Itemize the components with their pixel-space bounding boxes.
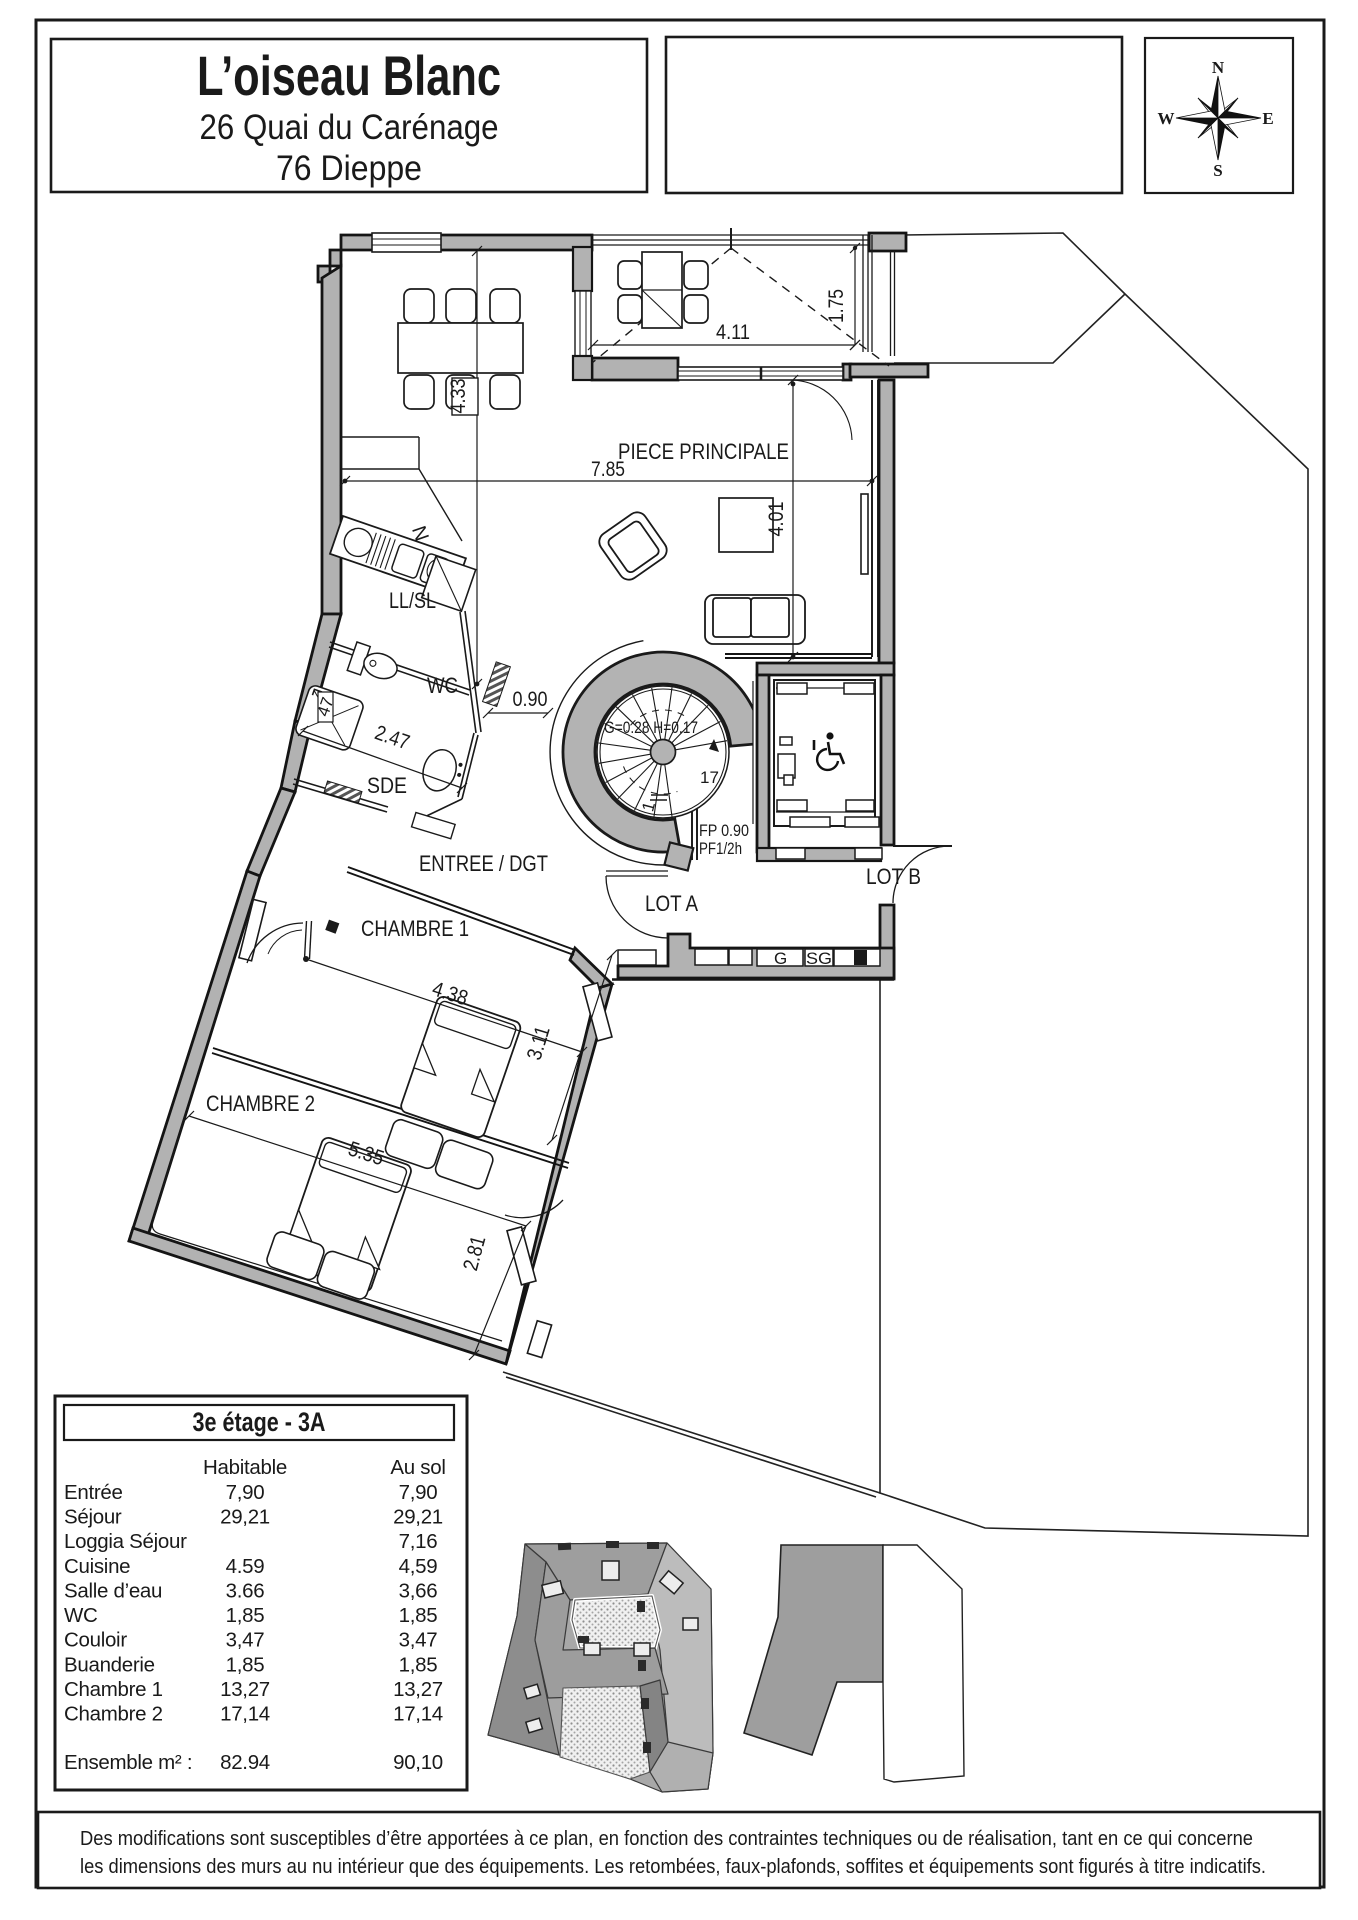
svg-text:90,10: 90,10: [393, 1751, 443, 1774]
svg-text:1,85: 1,85: [226, 1653, 265, 1676]
svg-text:3e étage - 3A: 3e étage - 3A: [193, 1407, 326, 1437]
svg-text:LOT A: LOT A: [645, 891, 698, 916]
svg-text:Loggia Séjour: Loggia Séjour: [64, 1530, 187, 1553]
svg-text:les dimensions des murs au nu: les dimensions des murs au nu intérieur …: [80, 1856, 1266, 1878]
svg-text:Chambre 2: Chambre 2: [64, 1703, 163, 1726]
svg-text:7,90: 7,90: [226, 1481, 265, 1504]
svg-text:29,21: 29,21: [393, 1506, 443, 1529]
svg-text:CHAMBRE 1: CHAMBRE 1: [361, 916, 469, 941]
svg-text:Ensemble m² :: Ensemble m² :: [64, 1751, 192, 1774]
svg-text:Séjour: Séjour: [64, 1506, 122, 1529]
svg-text:4,59: 4,59: [399, 1555, 438, 1578]
svg-text:7,90: 7,90: [399, 1481, 438, 1504]
svg-text:3,47: 3,47: [226, 1629, 265, 1652]
svg-text:Couloir: Couloir: [64, 1629, 127, 1652]
svg-text:ENTREE / DGT: ENTREE / DGT: [419, 851, 548, 876]
svg-text:CHAMBRE 2: CHAMBRE 2: [206, 1091, 315, 1116]
svg-text:N: N: [1212, 58, 1225, 77]
svg-text:1,85: 1,85: [399, 1653, 438, 1676]
svg-text:G: G: [774, 949, 787, 968]
svg-text:W: W: [1158, 109, 1175, 128]
svg-text:SG: SG: [806, 949, 832, 968]
svg-text:13,27: 13,27: [393, 1678, 443, 1701]
svg-text:1.75: 1.75: [825, 289, 848, 323]
svg-text:1,85: 1,85: [226, 1604, 265, 1627]
svg-text:WC: WC: [64, 1604, 98, 1627]
svg-text:WC: WC: [427, 673, 458, 698]
svg-text:29,21: 29,21: [220, 1506, 270, 1529]
svg-text:17,14: 17,14: [220, 1703, 270, 1726]
svg-text:Cuisine: Cuisine: [64, 1555, 130, 1578]
svg-text:3.66: 3.66: [226, 1580, 265, 1603]
svg-text:L’oiseau Blanc: L’oiseau Blanc: [197, 44, 501, 107]
svg-text:S: S: [1213, 161, 1222, 180]
svg-text:4.33: 4.33: [447, 379, 470, 414]
svg-text:4.01: 4.01: [765, 502, 788, 537]
svg-text:Buanderie: Buanderie: [64, 1653, 155, 1676]
svg-text:17,14: 17,14: [393, 1703, 443, 1726]
svg-text:7,16: 7,16: [399, 1530, 438, 1553]
svg-text:G=0.28 H=0.17: G=0.28 H=0.17: [604, 718, 698, 737]
svg-text:3,66: 3,66: [399, 1580, 438, 1603]
svg-text:17: 17: [700, 768, 719, 787]
svg-text:3,47: 3,47: [399, 1629, 438, 1652]
svg-text:Habitable: Habitable: [203, 1456, 287, 1479]
svg-text:0.90: 0.90: [513, 688, 548, 711]
svg-text:FP 0.90: FP 0.90: [699, 821, 749, 840]
svg-text:Entrée: Entrée: [64, 1481, 123, 1504]
svg-text:4.59: 4.59: [226, 1555, 265, 1578]
svg-text:Salle d’eau: Salle d’eau: [64, 1580, 162, 1603]
svg-text:Chambre 1: Chambre 1: [64, 1678, 163, 1701]
svg-text:SDE: SDE: [367, 773, 407, 798]
svg-text:26 Quai du Carénage: 26 Quai du Carénage: [200, 108, 499, 147]
svg-text:4.11: 4.11: [716, 321, 750, 344]
svg-text:PF1/2h: PF1/2h: [699, 839, 742, 858]
svg-text:LL/SL: LL/SL: [389, 588, 436, 613]
svg-text:Des modifications sont suscept: Des modifications sont susceptibles d’êt…: [80, 1828, 1253, 1850]
svg-text:E: E: [1262, 109, 1273, 128]
svg-text:Au sol: Au sol: [390, 1456, 445, 1479]
svg-text:LOT B: LOT B: [866, 864, 921, 889]
svg-text:1,85: 1,85: [399, 1604, 438, 1627]
svg-text:82.94: 82.94: [220, 1751, 270, 1774]
svg-text:76 Dieppe: 76 Dieppe: [276, 149, 422, 188]
svg-text:PIECE PRINCIPALE: PIECE PRINCIPALE: [618, 439, 789, 464]
svg-text:13,27: 13,27: [220, 1678, 270, 1701]
